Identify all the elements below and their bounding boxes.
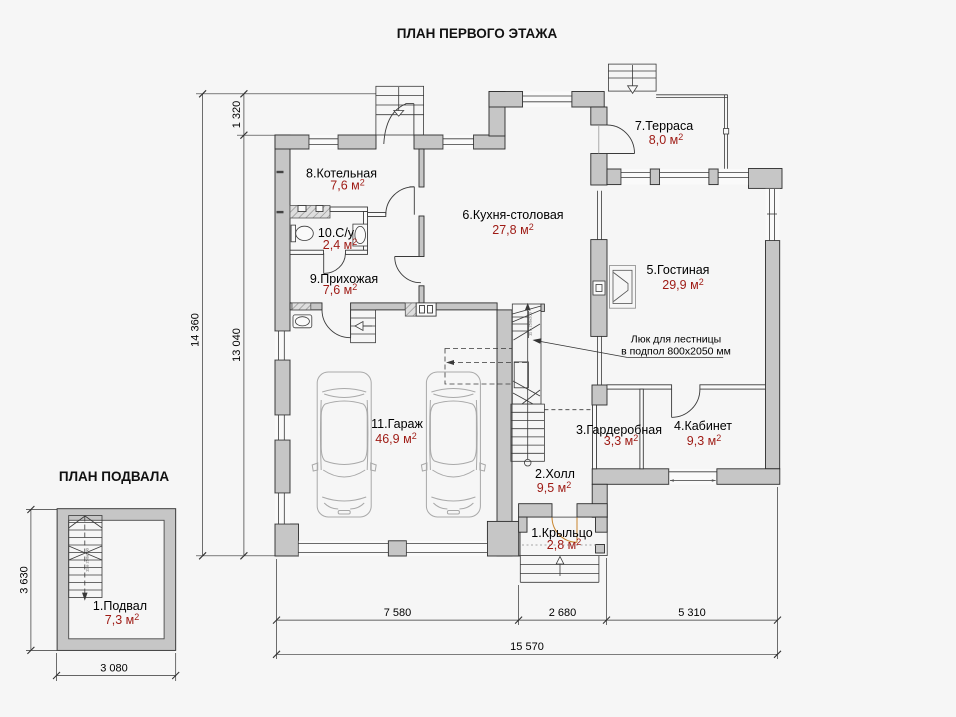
svg-text:6.Кухня-столовая: 6.Кухня-столовая [462, 208, 563, 222]
svg-text:9,5 м2: 9,5 м2 [537, 480, 571, 495]
svg-text:7,3 м2: 7,3 м2 [105, 612, 139, 627]
svg-text:8,0 м2: 8,0 м2 [649, 132, 683, 147]
svg-text:3,3 м2: 3,3 м2 [604, 433, 638, 448]
svg-text:3 630: 3 630 [19, 566, 31, 594]
svg-text:15 570: 15 570 [510, 641, 544, 653]
svg-text:2.Холл: 2.Холл [535, 467, 575, 481]
svg-text:7,6 м2: 7,6 м2 [323, 282, 357, 297]
svg-text:3 080: 3 080 [100, 663, 128, 675]
svg-text:2 680: 2 680 [549, 607, 577, 619]
svg-text:5.Гостиная: 5.Гостиная [647, 263, 710, 277]
svg-text:7,6 м2: 7,6 м2 [330, 178, 364, 193]
svg-text:ПЛАН ПОДВАЛА: ПЛАН ПОДВАЛА [59, 469, 170, 484]
svg-text:2,4 м2: 2,4 м2 [323, 237, 357, 252]
svg-text:11 в 250х200: 11 в 250х200 [84, 547, 89, 572]
svg-text:29,9 м2: 29,9 м2 [662, 277, 703, 292]
svg-text:9,3 м2: 9,3 м2 [687, 433, 721, 448]
svg-text:Люк для лестницы: Люк для лестницы [631, 334, 721, 346]
svg-text:1.Подвал: 1.Подвал [93, 599, 147, 613]
svg-text:11 в 250х200: 11 в 250х200 [528, 311, 533, 336]
svg-text:7.Терраса: 7.Терраса [635, 119, 693, 133]
svg-text:в подпол 800х2050 мм: в подпол 800х2050 мм [621, 346, 731, 358]
svg-text:5 310: 5 310 [678, 607, 706, 619]
svg-text:2,8 м2: 2,8 м2 [547, 537, 581, 552]
svg-text:14 360: 14 360 [190, 313, 202, 347]
svg-text:13 040: 13 040 [231, 328, 243, 362]
svg-text:7 580: 7 580 [384, 607, 412, 619]
svg-text:ПЛАН ПЕРВОГО ЭТАЖА: ПЛАН ПЕРВОГО ЭТАЖА [397, 26, 558, 41]
svg-text:11.Гараж: 11.Гараж [371, 417, 423, 431]
svg-text:46,9 м2: 46,9 м2 [375, 431, 416, 446]
svg-text:27,8 м2: 27,8 м2 [492, 222, 533, 237]
svg-text:1 320: 1 320 [231, 101, 243, 129]
svg-text:4.Кабинет: 4.Кабинет [674, 419, 732, 433]
